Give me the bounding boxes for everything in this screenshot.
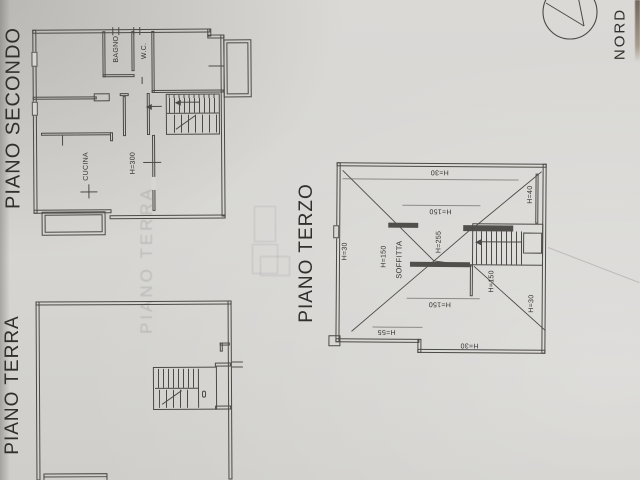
wall-segment xyxy=(228,301,233,480)
title-piano-terzo: PIANO TERZO xyxy=(296,183,318,322)
wall-segment xyxy=(106,475,107,480)
dim-tick xyxy=(209,65,225,66)
wall-segment xyxy=(120,93,129,96)
wall-segment xyxy=(43,473,107,477)
door-gap xyxy=(151,177,156,190)
dim-tick xyxy=(232,366,243,367)
dim-label-h55: H=55 xyxy=(377,328,395,335)
stair-arrow xyxy=(180,102,200,103)
wall-segment xyxy=(215,363,231,367)
window-tick xyxy=(112,27,113,35)
window-tick xyxy=(118,27,119,35)
stair-treads xyxy=(159,390,188,408)
wall-segment xyxy=(215,406,231,410)
dim-tick xyxy=(143,162,161,163)
dim-label-h300: H=300 xyxy=(130,152,137,174)
stair-landing xyxy=(523,233,542,254)
wall-segment xyxy=(123,96,126,136)
wall-segment xyxy=(36,301,232,306)
table-edge xyxy=(635,0,640,62)
ghost-showthrough-box xyxy=(260,256,290,276)
stair-symbol xyxy=(202,391,206,398)
window-tick xyxy=(139,27,140,35)
wall-notch xyxy=(220,343,223,352)
balcony xyxy=(223,39,251,97)
dim-label-h30-left: H=30 xyxy=(341,242,348,260)
floor-plan-terra xyxy=(36,297,251,480)
compass-icon xyxy=(536,0,608,52)
wall-segment xyxy=(131,31,134,71)
window-marker xyxy=(31,52,37,67)
stair-treads xyxy=(476,231,522,264)
wall-segment xyxy=(470,264,473,296)
dim-label-h150-lower: H=150 xyxy=(429,300,451,307)
wall-segment xyxy=(36,302,41,480)
dim-label-h150-left: H=150 xyxy=(380,245,387,267)
room-label-soffitta: SOFFITTA xyxy=(394,241,403,279)
wall-pier xyxy=(94,93,110,101)
wall-segment xyxy=(32,29,210,34)
sheet-edge-shadow xyxy=(548,247,640,283)
dim-label-h30-top: H=30 xyxy=(431,168,449,175)
photo-of-floorplan-sheet: PIANO TERRA PIANO SECONDO PIANO TERRA PI… xyxy=(0,0,640,480)
room-label-cucina: CUCINA xyxy=(83,152,90,181)
dim-tick xyxy=(232,361,243,362)
stair-inner-wall xyxy=(198,369,199,408)
dim-label-h30-right: H=30 xyxy=(528,295,535,313)
entry-arrow-head xyxy=(146,103,152,109)
wall-segment xyxy=(151,31,154,93)
wall-segment xyxy=(102,31,105,77)
stair-arrow-head xyxy=(475,239,481,245)
wall-segment xyxy=(147,93,150,135)
room-label-bagno: BAGNO xyxy=(113,36,120,63)
wall-segment xyxy=(103,74,135,77)
dim-label-h30-bottom: H=30 xyxy=(460,342,478,349)
floor-plan-terzo: H=30 H=150 H=150 H=55 H=30 H=40 H=30 H=1… xyxy=(333,159,552,361)
dim-label-h255: H=255 xyxy=(436,231,443,253)
stair-treads xyxy=(174,114,218,132)
wall-bar xyxy=(388,223,418,228)
stair-treads xyxy=(158,369,198,388)
title-piano-terra: PIANO TERRA xyxy=(2,315,24,454)
window-marker xyxy=(32,102,38,116)
wall-segment xyxy=(33,96,97,99)
wall-bar xyxy=(410,262,470,267)
compass-label-nord: NORD xyxy=(612,8,629,60)
wall-segment xyxy=(43,476,44,480)
dim-label-h40-right: H=40 xyxy=(527,186,534,204)
wall-segment xyxy=(110,214,226,219)
room-label-wc: W.C. xyxy=(141,43,148,59)
wall-segment xyxy=(41,132,111,135)
wall-segment xyxy=(152,89,224,93)
dim-label-h150-upper: H=150 xyxy=(429,207,451,214)
floor-plan-secondo: BAGNO W.C. CUCINA H=300 xyxy=(32,26,257,242)
dim-tick xyxy=(62,136,63,146)
dim-label-h150-stair: H=150 xyxy=(488,270,495,292)
stair-arrow-head xyxy=(175,99,181,105)
wall-segment xyxy=(152,135,156,211)
title-piano-secondo: PIANO SECONDO xyxy=(3,27,26,209)
balcony xyxy=(42,211,106,235)
dim-tick xyxy=(88,184,89,198)
door-jamb xyxy=(110,132,113,141)
door-jamb-tick xyxy=(142,77,143,84)
